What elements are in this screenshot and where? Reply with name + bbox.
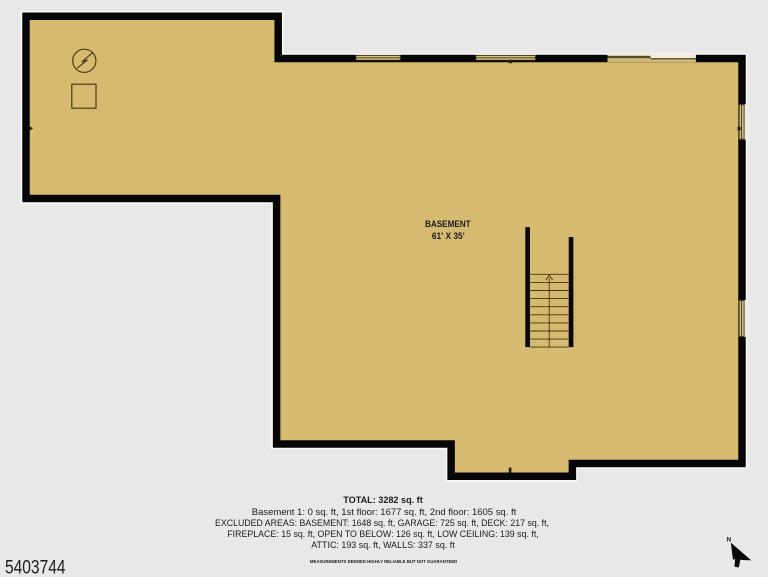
svg-text:Basement 1: 0 sq. ft, 1st floo: Basement 1: 0 sq. ft, 1st floor: 1677 sq… — [252, 507, 517, 517]
svg-text:FIREPLACE: 15 sq. ft, OPEN TO: FIREPLACE: 15 sq. ft, OPEN TO BELOW: 126… — [227, 529, 539, 539]
svg-text:61' X 35': 61' X 35' — [432, 231, 465, 241]
svg-text:BASEMENT: BASEMENT — [425, 219, 471, 229]
svg-text:N: N — [727, 537, 732, 544]
svg-text:ATTIC: 193 sq. ft, WALLS: 337: ATTIC: 193 sq. ft, WALLS: 337 sq. ft — [311, 540, 455, 550]
svg-text:5403744: 5403744 — [5, 558, 66, 577]
svg-text:MEASUREMENTS DEEMED HIGHLY REL: MEASUREMENTS DEEMED HIGHLY RELIABLE BUT … — [310, 559, 458, 564]
svg-text:TOTAL: 3282 sq. ft: TOTAL: 3282 sq. ft — [343, 495, 423, 506]
svg-text:EXCLUDED AREAS: BASEMENT: 1648: EXCLUDED AREAS: BASEMENT: 1648 sq. ft, G… — [215, 518, 549, 528]
